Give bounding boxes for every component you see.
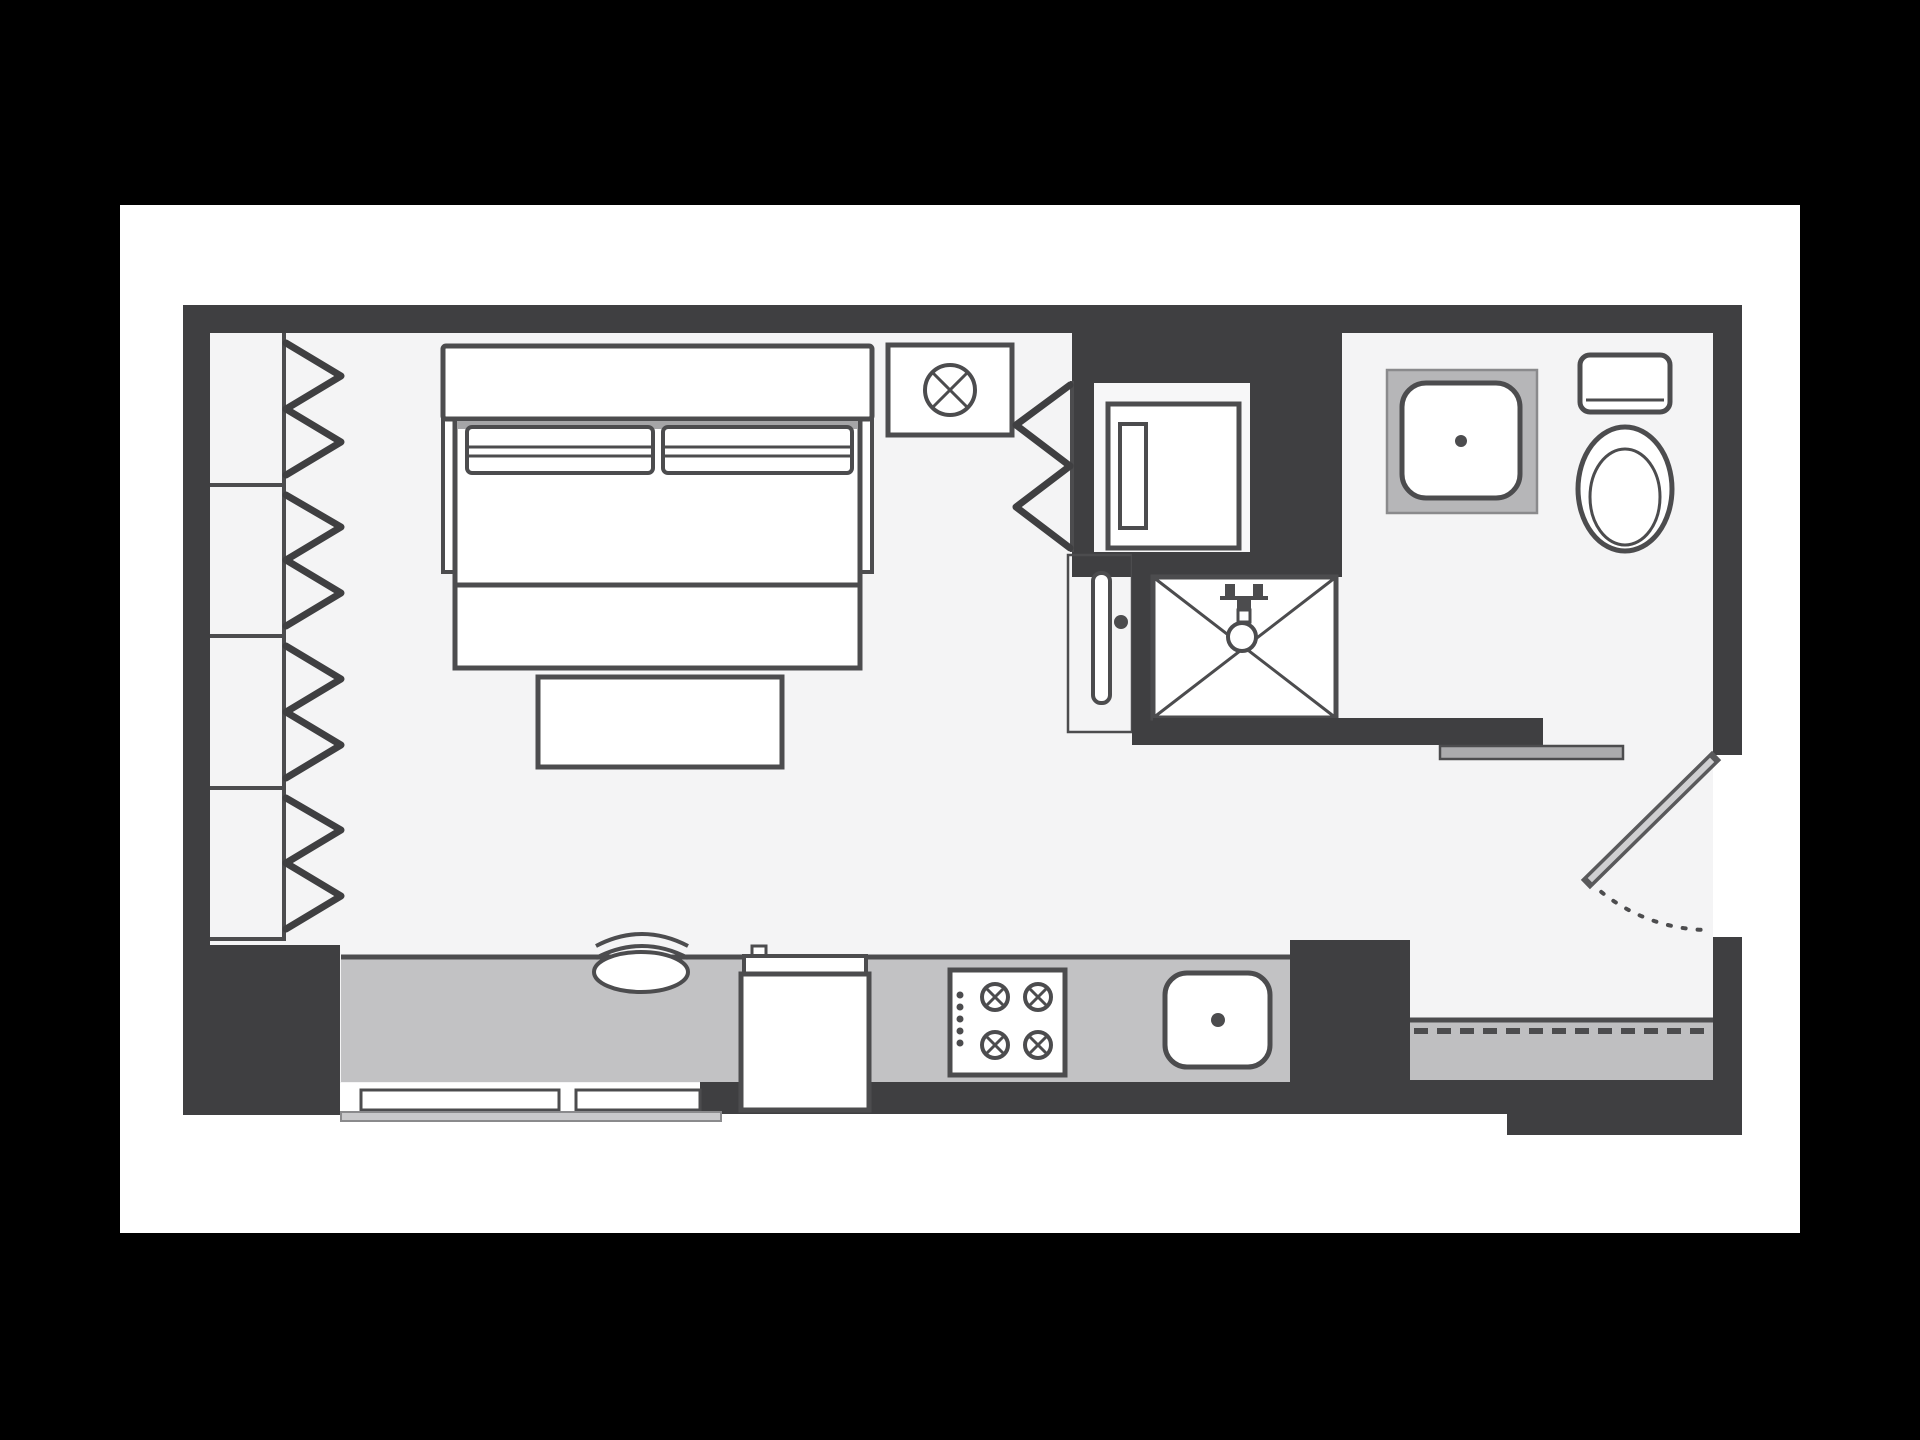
pillow-left <box>467 427 653 473</box>
cabinet-front <box>361 1090 559 1110</box>
bed-foot-section <box>455 585 860 668</box>
cooktop-knob <box>957 992 964 999</box>
stool-seat <box>594 952 688 992</box>
floor-plan <box>0 0 1920 1440</box>
cabinet-front <box>576 1090 700 1110</box>
ledge-shelf <box>1440 746 1623 759</box>
bench <box>538 677 782 767</box>
wall-kitchen-pillar <box>1290 940 1410 1085</box>
wall-top <box>183 305 1742 333</box>
ceiling-light <box>888 345 1012 435</box>
wall-bottom-left-block <box>183 945 340 1115</box>
headboard <box>443 346 872 419</box>
shower-drain-icon <box>1228 623 1256 651</box>
entry-floor <box>1410 1018 1713 1080</box>
toilet <box>1578 355 1672 551</box>
screenshot-stage <box>0 0 1920 1440</box>
cooktop <box>950 970 1065 1075</box>
cabinet-kick-strip <box>341 1112 721 1121</box>
sink-drain-icon <box>1211 1013 1225 1027</box>
sliding-door-handle-icon <box>1114 615 1128 629</box>
wall-under-shower <box>1153 718 1543 745</box>
wall-right-upper <box>1713 333 1742 755</box>
toilet-tank <box>1580 355 1670 412</box>
sink-drain-icon <box>1455 435 1467 447</box>
cooktop-knob <box>957 1028 964 1035</box>
sliding-door <box>1093 573 1110 703</box>
base-cabinets <box>341 1090 721 1121</box>
wall-left <box>183 333 210 945</box>
wall-bottom-right-step <box>1507 1114 1742 1135</box>
fridge-lid <box>744 956 866 974</box>
cooktop-knob <box>957 1040 964 1047</box>
fridge-body <box>741 974 869 1110</box>
cooktop-knob <box>957 1016 964 1023</box>
toilet-bowl <box>1578 427 1672 551</box>
refrigerator <box>741 946 869 1110</box>
pillow-right <box>663 427 852 473</box>
kitchen-sink <box>1165 973 1270 1067</box>
wall-shower-left <box>1132 552 1153 745</box>
washer-door <box>1120 424 1146 528</box>
cooktop-knob <box>957 1004 964 1011</box>
